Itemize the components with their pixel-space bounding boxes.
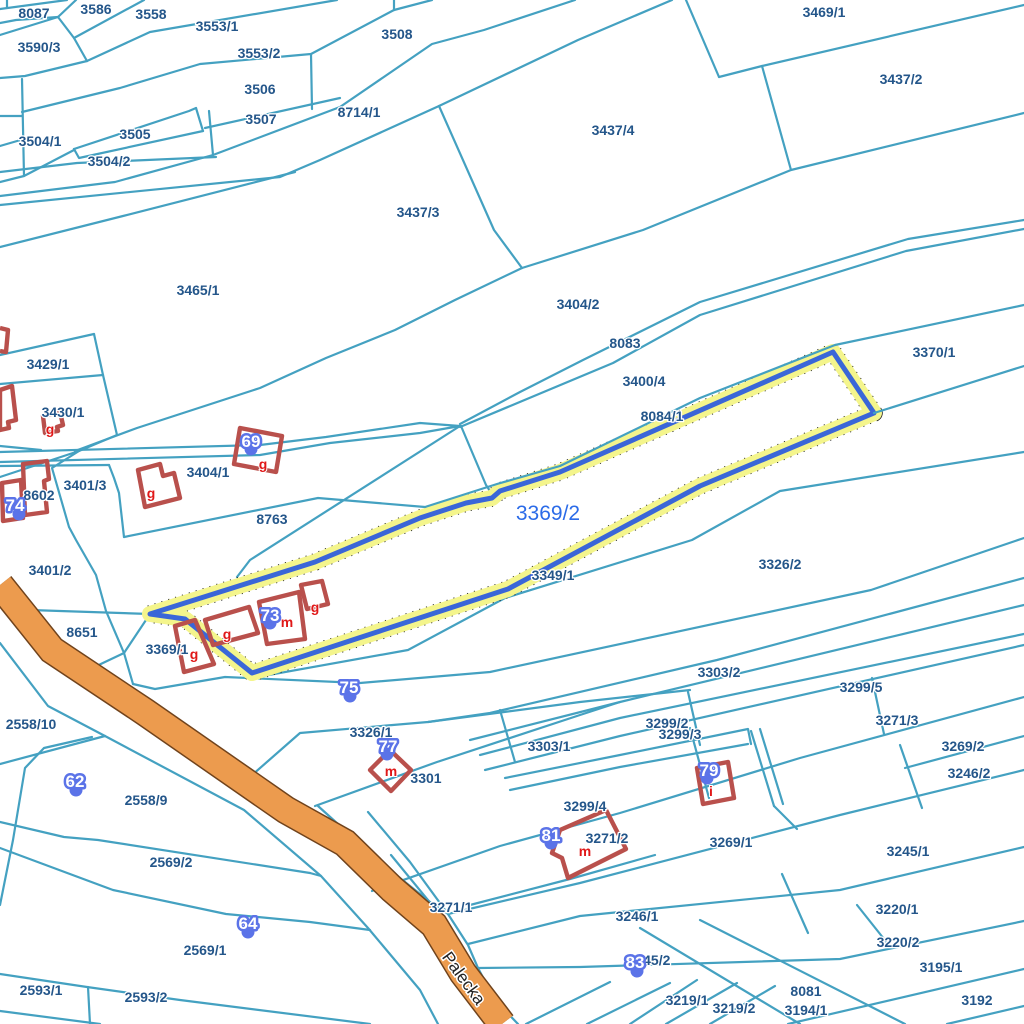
svg-text:3369/1: 3369/1 — [146, 641, 189, 657]
svg-text:3437/3: 3437/3 — [397, 204, 440, 220]
svg-text:2593/1: 2593/1 — [20, 982, 63, 998]
svg-text:3245/1: 3245/1 — [887, 843, 930, 859]
svg-text:3507: 3507 — [245, 111, 276, 127]
svg-text:3404/2: 3404/2 — [557, 296, 600, 312]
svg-text:3299/3: 3299/3 — [659, 726, 702, 742]
svg-text:2593/2: 2593/2 — [125, 989, 168, 1005]
svg-text:74: 74 — [6, 496, 25, 515]
svg-text:3586: 3586 — [80, 1, 111, 17]
svg-text:8651: 8651 — [66, 624, 97, 640]
svg-text:3465/1: 3465/1 — [177, 282, 220, 298]
svg-text:m: m — [385, 763, 397, 779]
svg-text:g: g — [46, 421, 55, 437]
svg-text:3271/2: 3271/2 — [586, 830, 629, 846]
svg-text:3219/1: 3219/1 — [666, 992, 709, 1008]
svg-text:3269/1: 3269/1 — [710, 834, 753, 850]
svg-text:g: g — [190, 646, 199, 662]
svg-text:3271/3: 3271/3 — [876, 712, 919, 728]
svg-text:2558/10: 2558/10 — [6, 716, 57, 732]
svg-text:3299/4: 3299/4 — [564, 798, 607, 814]
svg-text:3219/2: 3219/2 — [713, 1000, 756, 1016]
svg-text:3246/2: 3246/2 — [948, 765, 991, 781]
svg-text:3504/2: 3504/2 — [88, 153, 131, 169]
svg-text:3303/2: 3303/2 — [698, 664, 741, 680]
svg-text:3349/1: 3349/1 — [532, 567, 575, 583]
svg-text:3269/2: 3269/2 — [942, 738, 985, 754]
svg-text:3194/1: 3194/1 — [785, 1002, 828, 1018]
svg-text:3401/2: 3401/2 — [29, 562, 72, 578]
svg-text:g: g — [223, 626, 232, 642]
svg-text:3508: 3508 — [381, 26, 412, 42]
svg-text:2558/9: 2558/9 — [125, 792, 168, 808]
svg-text:8081: 8081 — [790, 983, 821, 999]
svg-text:3299/5: 3299/5 — [840, 679, 883, 695]
svg-text:3505: 3505 — [119, 126, 150, 142]
svg-text:3195/1: 3195/1 — [920, 959, 963, 975]
svg-text:2569/1: 2569/1 — [184, 942, 227, 958]
svg-text:3271/1: 3271/1 — [430, 899, 473, 915]
svg-text:3437/2: 3437/2 — [880, 71, 923, 87]
svg-text:3401/3: 3401/3 — [64, 477, 107, 493]
svg-text:2569/2: 2569/2 — [150, 854, 193, 870]
svg-text:8602: 8602 — [23, 487, 54, 503]
svg-text:8763: 8763 — [256, 511, 287, 527]
svg-text:79: 79 — [700, 761, 719, 780]
svg-text:g: g — [311, 599, 320, 615]
svg-text:3303/1: 3303/1 — [528, 738, 571, 754]
svg-text:3553/1: 3553/1 — [196, 18, 239, 34]
svg-text:3246/1: 3246/1 — [616, 908, 659, 924]
svg-text:3504/1: 3504/1 — [19, 133, 62, 149]
svg-text:62: 62 — [66, 772, 85, 791]
svg-text:8084/1: 8084/1 — [641, 408, 684, 424]
svg-text:3404/1: 3404/1 — [187, 464, 230, 480]
svg-text:3369/2: 3369/2 — [516, 502, 580, 525]
svg-text:8714/1: 8714/1 — [338, 104, 381, 120]
svg-text:3558: 3558 — [135, 6, 166, 22]
svg-text:m: m — [281, 614, 293, 630]
svg-text:3430/1: 3430/1 — [42, 404, 85, 420]
svg-text:77: 77 — [379, 737, 398, 756]
svg-text:g: g — [259, 456, 268, 472]
svg-text:3506: 3506 — [244, 81, 275, 97]
svg-text:8087: 8087 — [18, 5, 49, 21]
svg-text:3220/1: 3220/1 — [876, 901, 919, 917]
svg-text:81: 81 — [542, 826, 561, 845]
svg-text:i: i — [709, 783, 713, 799]
svg-text:3220/2: 3220/2 — [877, 934, 920, 950]
svg-text:8083: 8083 — [609, 335, 640, 351]
svg-text:83: 83 — [626, 953, 645, 972]
svg-text:3553/2: 3553/2 — [238, 45, 281, 61]
svg-text:m: m — [579, 843, 591, 859]
svg-text:3370/1: 3370/1 — [913, 344, 956, 360]
svg-text:69: 69 — [242, 432, 261, 451]
svg-text:64: 64 — [239, 914, 258, 933]
svg-text:3301: 3301 — [410, 770, 441, 786]
svg-text:3437/4: 3437/4 — [592, 122, 635, 138]
svg-text:3590/3: 3590/3 — [18, 39, 61, 55]
svg-text:3469/1: 3469/1 — [803, 4, 846, 20]
svg-text:3429/1: 3429/1 — [27, 356, 70, 372]
svg-text:75: 75 — [340, 678, 359, 697]
svg-text:g: g — [147, 485, 156, 501]
svg-text:73: 73 — [261, 606, 280, 625]
svg-text:3400/4: 3400/4 — [623, 373, 666, 389]
svg-text:3192: 3192 — [961, 992, 992, 1008]
svg-text:3326/2: 3326/2 — [759, 556, 802, 572]
